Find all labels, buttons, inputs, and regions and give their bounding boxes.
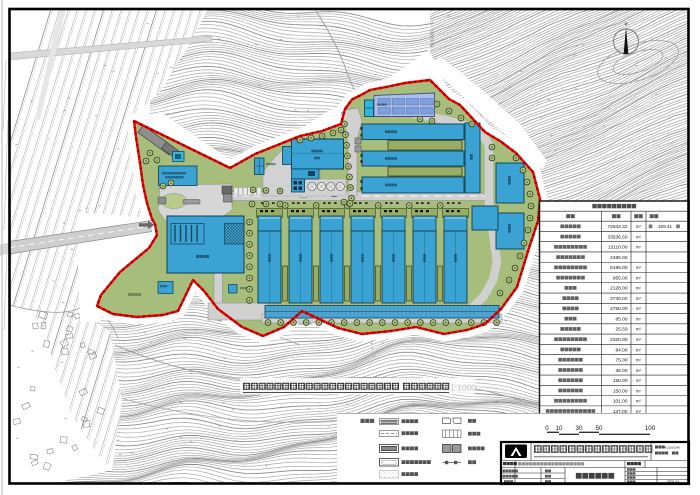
svg-text:150.00: 150.00 [613,378,628,384]
svg-text:m²: m² [636,224,641,229]
svg-text:2485.00: 2485.00 [610,255,628,261]
svg-text:33536.50: 33536.50 [607,234,627,240]
svg-text:m²: m² [636,327,641,332]
svg-text:2128.00: 2128.00 [610,286,628,292]
svg-text:10: 10 [556,425,563,432]
svg-text:m²: m² [636,347,641,352]
svg-text:50: 50 [596,425,603,432]
svg-text:2320.00: 2320.00 [610,337,628,343]
svg-text:m²: m² [636,296,641,301]
svg-text:m²: m² [636,265,641,270]
svg-text:m²: m² [636,316,641,321]
svg-text:m²: m² [636,275,641,280]
svg-text:m²: m² [636,378,641,383]
svg-text:100: 100 [645,425,656,432]
svg-text:13110.00: 13110.00 [608,245,628,251]
svg-text:m²: m² [636,388,641,393]
svg-text:m²: m² [636,409,641,414]
svg-text:36.00: 36.00 [615,368,627,374]
svg-text:1:1000: 1:1000 [450,383,476,393]
svg-text:25.50: 25.50 [615,327,627,333]
svg-text:109.41: 109.41 [658,224,672,229]
svg-text:m²: m² [636,306,641,311]
svg-text:72943.32: 72943.32 [607,224,627,230]
svg-text:m²: m² [636,286,641,291]
svg-text:75.00: 75.00 [615,358,627,364]
svg-text:m²: m² [636,337,641,342]
svg-text:m²: m² [636,399,641,404]
svg-text:150.00: 150.00 [613,388,628,394]
svg-text:101.00: 101.00 [613,399,628,405]
svg-text:84.00: 84.00 [615,347,627,353]
svg-text:2750.00: 2750.00 [610,306,628,312]
svg-text:m²: m² [636,368,641,373]
svg-text:0: 0 [545,425,549,432]
svg-text:m²: m² [636,234,641,239]
svg-text:85.00: 85.00 [615,316,627,322]
svg-text:A111010240: A111010240 [664,446,680,450]
svg-text:m²: m² [636,245,641,250]
svg-text:3740.00: 3740.00 [610,296,628,302]
svg-text:955.00: 955.00 [613,275,628,281]
svg-text:m²: m² [636,358,641,363]
svg-text:30: 30 [576,425,583,432]
svg-text:5195.00: 5195.00 [610,265,628,271]
